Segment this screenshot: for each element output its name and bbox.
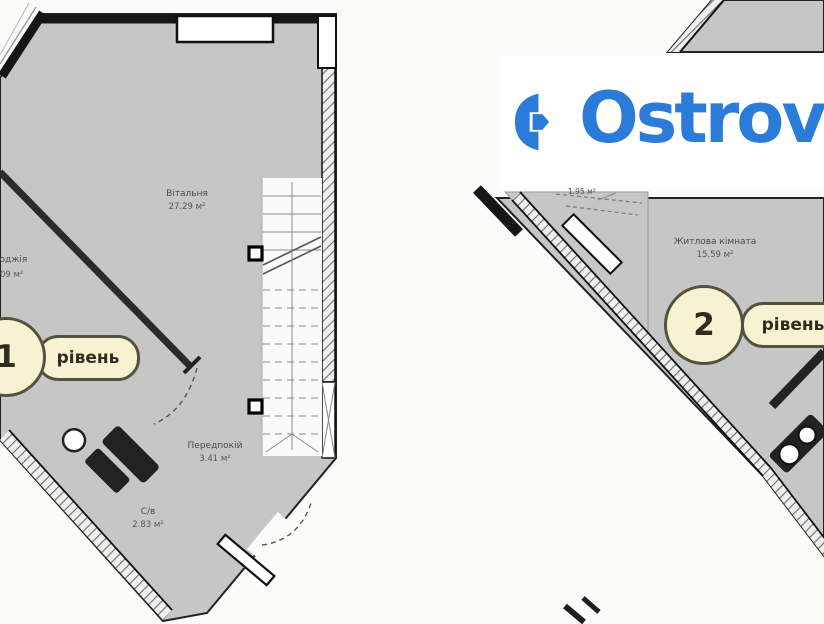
level-1-badge-label: рівень (36, 335, 140, 381)
room-area: 2.83 м² (117, 519, 179, 531)
room-area: 1.95 м² (568, 187, 596, 196)
bathroom-label: С/в 2.83 м² (117, 506, 179, 531)
logo-text: Ostrov (579, 77, 824, 159)
level-2-badge-label: рівень (741, 302, 824, 348)
corner-window (318, 16, 336, 68)
loggia-area-label: 09 м² (0, 269, 50, 281)
wall-fragment-marks (565, 598, 599, 622)
level-2-badge-number: 2 (664, 285, 744, 365)
section-marker (249, 247, 262, 260)
room-name: Житлова кімната (655, 236, 775, 249)
room-name: Передпокій (167, 440, 263, 453)
room-area: 27.29 м² (139, 201, 235, 213)
room-area: 09 м² (0, 269, 50, 281)
room-area: 15.59 м² (655, 249, 775, 261)
logo: Ostrov (500, 56, 824, 188)
room-name: С/в (117, 506, 179, 519)
room-area: 3.41 м² (167, 453, 263, 465)
section-marker (249, 400, 262, 413)
right-wall-hatched (322, 66, 335, 382)
living-room-label: Вітальня 27.29 м² (139, 188, 235, 213)
room-name: Лоджія (0, 254, 42, 267)
loggia-label: Лоджія (0, 254, 42, 267)
floorplan-screenshot: Вітальня 27.29 м² Лоджія 09 м² Передпокі… (0, 0, 824, 624)
room-name: Вітальня (139, 188, 235, 201)
top-window (177, 16, 273, 42)
hallway-label: Передпокій 3.41 м² (167, 440, 263, 465)
ostrov-logo-icon (514, 63, 553, 181)
balcony-area-label: 1.95 м² (568, 187, 620, 196)
bedroom-label: Житлова кімната 15.59 м² (655, 236, 775, 261)
